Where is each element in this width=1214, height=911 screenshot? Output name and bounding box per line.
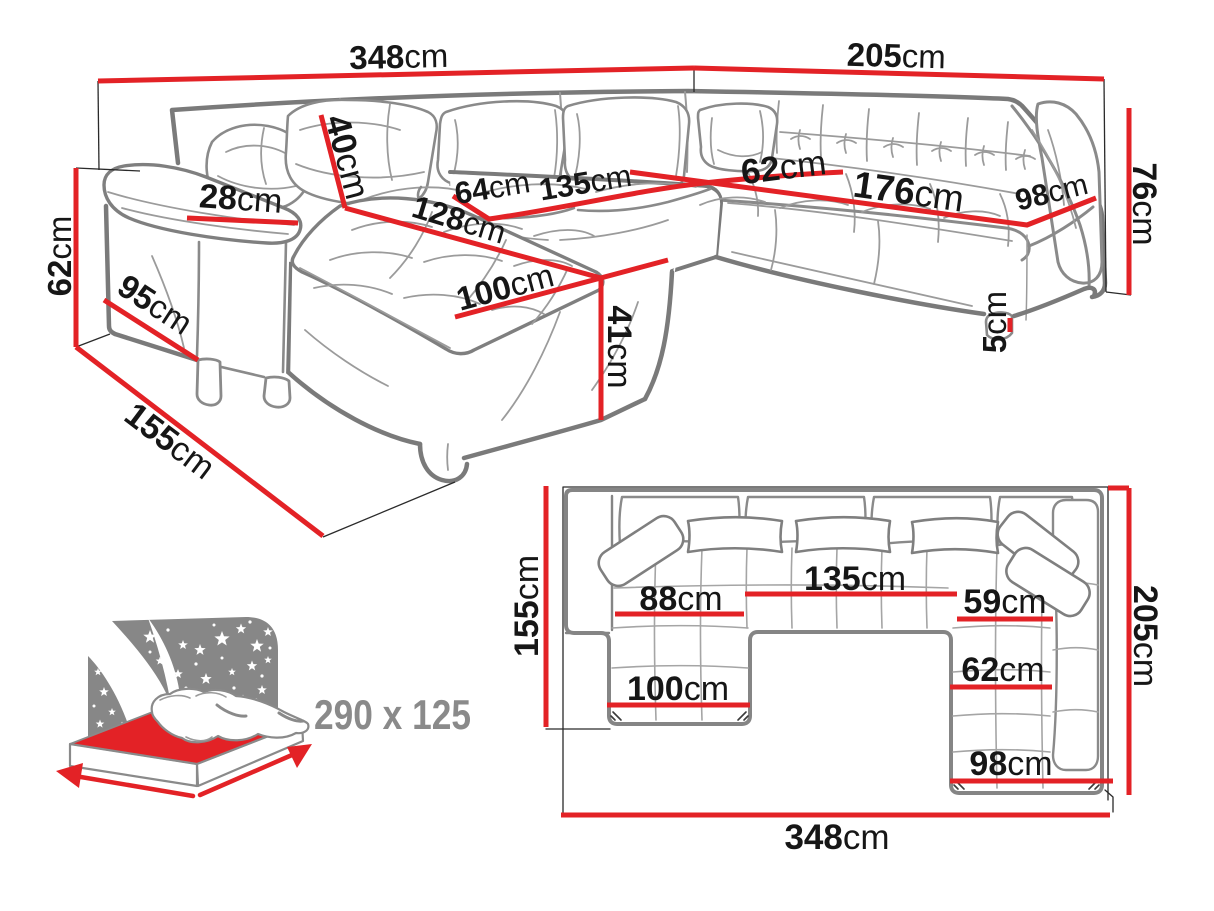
svg-text:290 x 125: 290 x 125 xyxy=(314,691,471,738)
svg-text:62cm: 62cm xyxy=(41,216,78,297)
svg-text:348cm: 348cm xyxy=(349,37,449,76)
svg-text:348cm: 348cm xyxy=(784,818,889,857)
svg-text:76cm: 76cm xyxy=(1125,162,1163,245)
svg-text:100cm: 100cm xyxy=(627,670,729,708)
svg-text:155cm: 155cm xyxy=(508,555,546,657)
svg-text:28cm: 28cm xyxy=(198,177,284,221)
svg-text:41cm: 41cm xyxy=(600,305,638,388)
svg-text:98cm: 98cm xyxy=(969,745,1052,783)
svg-text:205cm: 205cm xyxy=(1126,585,1164,687)
svg-text:155cm: 155cm xyxy=(117,395,221,487)
svg-text:62cm: 62cm xyxy=(961,651,1044,689)
svg-text:88cm: 88cm xyxy=(639,580,722,618)
svg-text:59cm: 59cm xyxy=(963,583,1046,621)
svg-text:5cm: 5cm xyxy=(976,291,1013,353)
svg-text:205cm: 205cm xyxy=(846,36,946,76)
svg-text:135cm: 135cm xyxy=(804,560,906,598)
